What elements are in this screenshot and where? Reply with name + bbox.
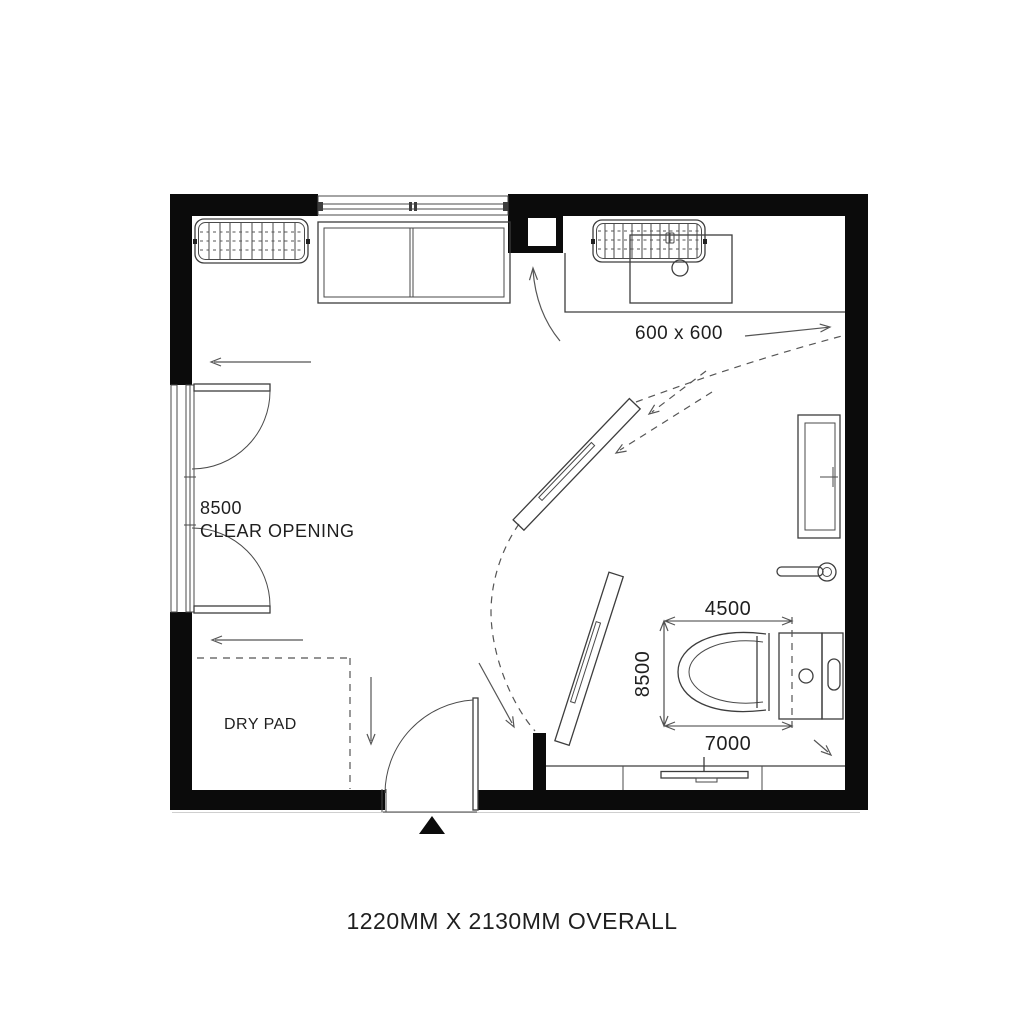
window-unit [318, 222, 510, 303]
screen-panel-lower [555, 572, 623, 745]
arrow-to-niche [530, 268, 561, 341]
window-top [318, 196, 508, 215]
arrow-entry-diagonal [479, 663, 514, 727]
left-door-outer-frame [171, 385, 177, 612]
bench [546, 757, 845, 790]
arrow-dry-pad-down [367, 677, 375, 744]
arrow-left-upper [211, 358, 311, 366]
window-mullion-center-a [409, 202, 412, 211]
entry-door-leaf [473, 698, 478, 810]
toilet-cistern [779, 633, 822, 719]
arrow-grille-size [745, 324, 830, 336]
guide-arrow-1 [649, 371, 706, 414]
grab-rail [661, 757, 748, 782]
dim-bottom-label: 7000 [705, 733, 752, 755]
arrow-corner [814, 740, 831, 755]
left-door-leaf-bottom [194, 606, 270, 613]
floor-plan: 600 x 600 8500 CLEAR [0, 0, 1024, 1024]
screen-panel-upper [513, 399, 640, 531]
entry-marker-triangle [419, 816, 445, 834]
grille-left-tick-l [193, 239, 197, 244]
toilet-bowl-outer [678, 633, 766, 712]
screen-swing-guides [491, 336, 842, 731]
window-mullion-center-b [414, 202, 417, 211]
swing-guide-upper [636, 336, 842, 402]
wall-left-lower [170, 612, 192, 810]
guide-arrow-2 [616, 392, 712, 453]
grille-size-label: 600 x 600 [635, 323, 723, 344]
clear-opening-label: CLEAR OPENING [200, 521, 355, 541]
grille-left [193, 219, 310, 263]
dry-pad-zone: DRY PAD [197, 658, 375, 789]
wall-bottom-left [170, 790, 385, 810]
grille-right [591, 220, 707, 262]
wall-left-upper [170, 194, 192, 385]
entry-door [382, 698, 478, 834]
toilet-bowl-inner [689, 641, 763, 703]
left-door-leaf-top [194, 384, 270, 391]
wall-bottom-right [478, 790, 868, 810]
dim-side-label: 8500 [632, 651, 654, 698]
wall-stub [533, 733, 546, 790]
swing-guide-arc [491, 524, 535, 731]
arrow-left-lower [212, 636, 303, 644]
duct-niche [528, 218, 556, 246]
flush-button [799, 669, 813, 683]
window-mullion-right [503, 202, 508, 211]
overall-note: 1220MM X 2130MM OVERALL [346, 908, 677, 934]
grille-left-grid [200, 223, 303, 259]
dim-top-label: 4500 [705, 598, 752, 620]
basin [630, 235, 732, 303]
wall-top-left [170, 194, 318, 216]
grille-right-tick-r [703, 239, 707, 244]
left-door-swing-top [192, 391, 270, 469]
entry-door-swing [385, 700, 473, 793]
flush-plate [828, 659, 840, 690]
floor-plan-drawing: 600 x 600 8500 CLEAR [0, 0, 1024, 1024]
grille-left-tick-r [306, 239, 310, 244]
mirror-cabinet [798, 415, 840, 538]
dry-pad-label: DRY PAD [224, 716, 297, 733]
lever-handle [777, 563, 836, 581]
wall-right [845, 194, 868, 810]
clear-opening-value: 8500 [200, 498, 242, 518]
grille-right-tick-l [591, 239, 595, 244]
grille-right-grid [598, 224, 700, 258]
toilet-dimensions: 4500 8500 7000 [632, 598, 792, 755]
toilet [678, 633, 843, 719]
window-mullion-left [318, 202, 323, 211]
